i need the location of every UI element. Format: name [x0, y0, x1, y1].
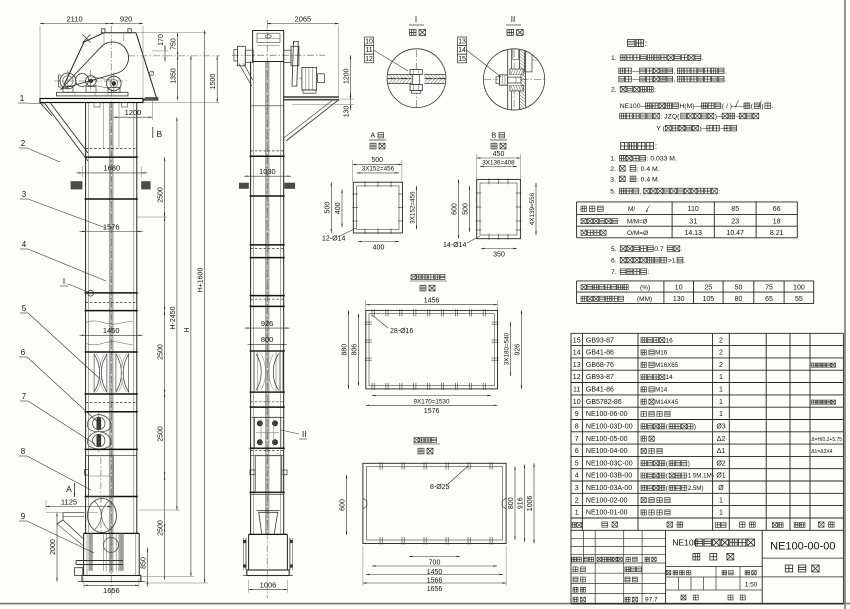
svg-text:A: A [371, 133, 376, 140]
svg-text:500: 500 [463, 203, 470, 215]
svg-text:1006: 1006 [527, 496, 534, 512]
svg-text:M/: M/ [628, 206, 635, 213]
svg-text:Δ2: Δ2 [717, 436, 726, 443]
svg-text:2500: 2500 [158, 426, 165, 442]
svg-text:GB93-87: GB93-87 [586, 337, 614, 344]
svg-text:700: 700 [429, 559, 441, 566]
svg-text:H(M)——: H(M)—— [679, 103, 708, 110]
svg-text:450: 450 [493, 151, 505, 158]
svg-text:3X180=540: 3X180=540 [504, 332, 511, 365]
svg-text:31: 31 [689, 218, 697, 225]
svg-text::: : [718, 188, 720, 195]
svg-text:18: 18 [773, 218, 781, 225]
svg-text:.: . [684, 258, 686, 265]
svg-text:M14X45: M14X45 [655, 399, 679, 406]
svg-text:1.: 1. [611, 55, 617, 62]
svg-text::: : [654, 87, 656, 94]
svg-text:H+1600: H+1600 [198, 268, 205, 293]
svg-text:8.21: 8.21 [770, 230, 784, 237]
svg-text:55: 55 [795, 296, 803, 303]
svg-text:14-Ø14: 14-Ø14 [443, 242, 466, 249]
svg-text:,: , [674, 68, 676, 75]
svg-text:8-Ø25: 8-Ø25 [430, 484, 450, 491]
svg-text:2110: 2110 [67, 14, 83, 23]
svg-text:1576: 1576 [424, 408, 440, 415]
svg-text:I: I [415, 15, 417, 24]
svg-text:Ø2: Ø2 [716, 460, 725, 467]
svg-text:1: 1 [575, 510, 579, 517]
svg-text:13: 13 [573, 362, 581, 369]
svg-text:M16: M16 [655, 350, 668, 357]
svg-text:5: 5 [575, 460, 579, 467]
svg-text:NE100-02-00: NE100-02-00 [586, 497, 628, 504]
svg-text:9: 9 [575, 411, 579, 418]
svg-text:170: 170 [158, 34, 165, 46]
svg-text:,: , [674, 77, 676, 84]
svg-text:3X136=408: 3X136=408 [482, 159, 515, 166]
svg-text:1656: 1656 [427, 586, 443, 593]
svg-text:1125: 1125 [61, 497, 77, 506]
svg-text:Y (: Y ( [656, 126, 665, 133]
svg-text:II: II [511, 15, 515, 24]
svg-text:600: 600 [340, 499, 347, 511]
svg-text:1.5M,1M): 1.5M,1M) [688, 473, 714, 480]
svg-text:GB41-86: GB41-86 [586, 350, 614, 357]
svg-text:3X152=456: 3X152=456 [362, 166, 395, 173]
svg-text:400: 400 [335, 202, 342, 214]
svg-text:NE100-03C-00: NE100-03C-00 [586, 460, 633, 467]
svg-text:5: 5 [22, 304, 27, 313]
svg-text:.: . [725, 68, 727, 75]
svg-text:)—: )— [699, 126, 708, 133]
svg-text:5.: 5. [610, 188, 616, 195]
svg-text:85: 85 [731, 206, 739, 213]
svg-text:NE100-01-00: NE100-01-00 [586, 510, 628, 517]
svg-text:NE100-03B-00: NE100-03B-00 [586, 473, 632, 480]
svg-text:): ) [688, 460, 690, 467]
svg-text:1.: 1. [610, 156, 616, 163]
svg-text:10: 10 [573, 399, 581, 406]
svg-text:25: 25 [704, 284, 712, 291]
svg-text:920: 920 [120, 14, 133, 23]
svg-text:NE100-04-00: NE100-04-00 [586, 448, 628, 455]
svg-text:75: 75 [765, 284, 773, 291]
svg-text:Ø3: Ø3 [716, 424, 725, 431]
svg-text:750: 750 [171, 38, 178, 50]
svg-text:1680: 1680 [103, 164, 120, 173]
svg-text:500: 500 [371, 157, 383, 164]
svg-text:1500: 1500 [210, 74, 217, 90]
svg-text:1: 1 [719, 374, 723, 381]
svg-text:: 0.033 M.: : 0.033 M. [647, 156, 677, 163]
svg-text:1576: 1576 [103, 222, 120, 231]
svg-text:( / )——: ( / )—— [722, 103, 746, 110]
svg-text:2500: 2500 [158, 344, 165, 360]
svg-text:110: 110 [688, 206, 699, 213]
svg-text:1200: 1200 [125, 108, 142, 117]
svg-text:II: II [302, 430, 306, 439]
svg-text:2500: 2500 [158, 520, 165, 536]
svg-text:2.5M): 2.5M) [688, 485, 704, 492]
svg-text:105: 105 [702, 296, 714, 303]
svg-text:130: 130 [673, 296, 685, 303]
svg-text:12: 12 [365, 56, 373, 63]
svg-text:14: 14 [573, 350, 581, 357]
svg-text:806: 806 [351, 344, 358, 356]
svg-text:NE100-06-00: NE100-06-00 [586, 411, 628, 418]
svg-text:1350: 1350 [171, 68, 178, 84]
svg-text:4X139=556: 4X139=556 [529, 192, 536, 225]
svg-text:.: . [702, 55, 704, 62]
svg-text:H: H [184, 327, 191, 332]
svg-text:1006: 1006 [260, 580, 277, 589]
svg-text:: 0.4 M.: : 0.4 M. [637, 166, 660, 173]
svg-text:Δ1: Δ1 [717, 448, 726, 455]
svg-text:B: B [157, 129, 163, 139]
svg-text:H-2450: H-2450 [170, 306, 177, 329]
svg-text:Ø1: Ø1 [716, 473, 725, 480]
svg-text:5.: 5. [611, 246, 617, 253]
svg-text:NE100-03D-00: NE100-03D-00 [586, 424, 633, 431]
svg-text:O/M=Ø: O/M=Ø [627, 230, 648, 237]
svg-text:66: 66 [773, 206, 781, 213]
svg-text:M14: M14 [655, 387, 668, 394]
svg-text:3.: 3. [610, 176, 616, 183]
svg-text:M/M=Ø: M/M=Ø [627, 218, 648, 225]
svg-text:Δ1=Δ2X4: Δ1=Δ2X4 [811, 449, 832, 455]
svg-text:2500: 2500 [158, 187, 165, 203]
svg-text:880: 880 [341, 344, 348, 356]
svg-text:1: 1 [719, 387, 723, 394]
svg-text::: : [645, 38, 647, 48]
svg-text:12-Ø14: 12-Ø14 [322, 236, 345, 243]
svg-text:50: 50 [735, 284, 743, 291]
svg-text:11: 11 [365, 47, 372, 54]
svg-text:1: 1 [719, 399, 723, 406]
svg-text:100: 100 [793, 284, 805, 291]
svg-text:: JZQ(: : JZQ( [661, 113, 681, 120]
svg-text:GB41-86: GB41-86 [586, 387, 614, 394]
svg-text:NE100-05-00: NE100-05-00 [586, 436, 628, 443]
svg-text:>1: >1 [668, 258, 676, 265]
svg-text:6: 6 [575, 448, 579, 455]
svg-text:850: 850 [141, 557, 148, 569]
svg-text:.: . [725, 77, 727, 84]
svg-text:GB93-87: GB93-87 [586, 374, 614, 381]
svg-text:12: 12 [573, 374, 581, 381]
svg-text:65: 65 [765, 296, 773, 303]
svg-text:97.7: 97.7 [645, 597, 658, 604]
svg-text:1456: 1456 [424, 298, 440, 305]
svg-text:13: 13 [458, 39, 466, 46]
svg-text:926: 926 [261, 319, 274, 328]
svg-text:926: 926 [514, 344, 521, 356]
svg-text:15: 15 [573, 337, 581, 344]
svg-text:I: I [63, 277, 65, 286]
svg-text:916: 916 [517, 497, 524, 509]
svg-text:1: 1 [719, 497, 723, 504]
svg-text::: : [655, 141, 657, 151]
svg-text:6.: 6. [611, 258, 617, 265]
svg-text:Δ=H/0.2+5.75: Δ=H/0.2+5.75 [811, 437, 842, 443]
svg-text:,: , [640, 188, 642, 195]
svg-text:): ) [761, 103, 763, 110]
svg-text:NE100: NE100 [672, 538, 698, 548]
svg-text:2: 2 [719, 362, 723, 369]
svg-text:10.47: 10.47 [726, 230, 744, 237]
svg-text:23: 23 [731, 218, 739, 225]
svg-text:2065: 2065 [295, 14, 312, 23]
svg-text:9X170=1530: 9X170=1530 [414, 398, 450, 405]
svg-text:Ø: Ø [718, 485, 724, 492]
svg-text:1450: 1450 [103, 326, 120, 335]
svg-text:B: B [492, 133, 497, 140]
svg-text:2: 2 [719, 337, 723, 344]
svg-text:NE100-00-00: NE100-00-00 [770, 541, 835, 553]
svg-text:2: 2 [719, 350, 723, 357]
svg-text:800: 800 [261, 335, 274, 344]
svg-text:2.: 2. [610, 166, 616, 173]
svg-text:14: 14 [666, 374, 673, 381]
svg-text:1200: 1200 [344, 68, 351, 84]
svg-text:10: 10 [675, 284, 683, 291]
svg-text:(%): (%) [640, 284, 650, 291]
svg-text:1656: 1656 [103, 586, 120, 595]
svg-text:16: 16 [666, 337, 673, 344]
svg-text:350: 350 [493, 252, 505, 259]
svg-text:(MM): (MM) [637, 296, 652, 303]
svg-text:4: 4 [575, 473, 579, 480]
svg-text:1: 1 [20, 94, 25, 103]
svg-text:130: 130 [344, 105, 351, 117]
svg-text:A: A [66, 484, 72, 494]
svg-text:10: 10 [365, 39, 373, 46]
svg-text:3: 3 [575, 485, 579, 492]
svg-text:28-Ø16: 28-Ø16 [390, 328, 413, 335]
svg-text::: : [647, 269, 649, 276]
svg-text:7: 7 [22, 392, 27, 401]
svg-text:8: 8 [21, 447, 26, 456]
svg-text:)—: )— [715, 113, 724, 120]
svg-text:GB5782-86: GB5782-86 [586, 399, 622, 406]
svg-text:2: 2 [575, 497, 579, 504]
svg-text:4: 4 [22, 240, 27, 249]
svg-text:7.: 7. [611, 269, 617, 276]
svg-text:800: 800 [508, 497, 515, 509]
svg-text:6: 6 [21, 348, 26, 357]
svg-text:14.13: 14.13 [684, 230, 702, 237]
svg-text:GB68-76: GB68-76 [586, 362, 614, 369]
svg-text:80: 80 [735, 296, 743, 303]
svg-text:7: 7 [575, 436, 579, 443]
svg-text:0.7: 0.7 [654, 246, 664, 253]
svg-text:NE100-03A-00: NE100-03A-00 [586, 485, 632, 492]
svg-text:1: 1 [719, 411, 723, 418]
svg-text:M16X65: M16X65 [655, 362, 679, 369]
svg-text:2.: 2. [611, 87, 617, 94]
svg-text:600: 600 [452, 203, 459, 215]
svg-text:1030: 1030 [259, 167, 276, 176]
svg-text:.: . [772, 103, 774, 110]
svg-text:11: 11 [573, 387, 580, 394]
svg-text:8: 8 [575, 424, 579, 431]
svg-text:400: 400 [373, 245, 385, 252]
svg-text:: 0.4 M.: : 0.4 M. [637, 176, 660, 183]
svg-text:1:50: 1:50 [745, 582, 758, 589]
svg-text:): ) [694, 424, 696, 431]
svg-text:2: 2 [21, 139, 26, 148]
svg-text:2000: 2000 [50, 539, 57, 555]
svg-text:1: 1 [719, 510, 723, 517]
svg-text:.: . [681, 246, 683, 253]
svg-text:3X152=456: 3X152=456 [410, 191, 417, 224]
svg-text:14: 14 [458, 47, 466, 54]
svg-text:9: 9 [21, 512, 26, 521]
svg-text:15: 15 [458, 56, 466, 63]
svg-text:3: 3 [22, 190, 27, 199]
svg-text:500: 500 [324, 202, 331, 214]
